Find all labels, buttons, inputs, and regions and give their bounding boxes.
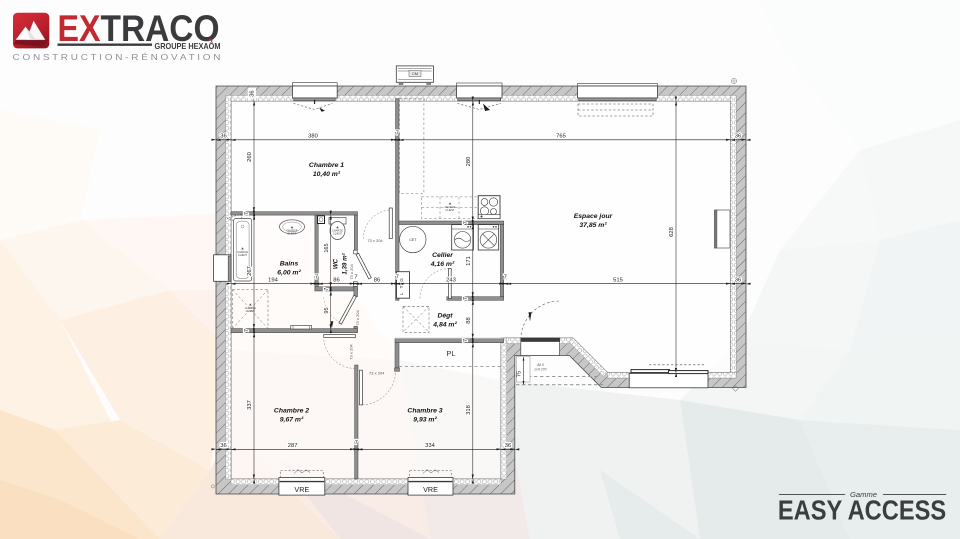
svg-text:7: 7 [244,329,250,332]
svg-text:VRE: VRE [423,485,438,494]
svg-text:VRE: VRE [294,485,309,494]
svg-text:36: 36 [505,443,511,449]
svg-text:9,67 m²: 9,67 m² [280,417,304,424]
svg-text:243: 243 [446,277,456,283]
svg-text:73 x 204: 73 x 204 [349,264,354,280]
svg-text:171: 171 [466,256,472,266]
svg-text:7: 7 [504,274,507,280]
svg-text:6,00 m²: 6,00 m² [277,270,301,277]
svg-text:7: 7 [355,440,358,446]
svg-text:95: 95 [324,307,330,313]
svg-text:37,85 m²: 37,85 m² [579,222,607,229]
svg-text:Chambre 2: Chambre 2 [274,408,309,415]
svg-text:Chambre 3: Chambre 3 [407,408,442,415]
svg-text:C O N S T R U C T I O N - R: C O N S T R U C T I O N - R É N O V A T … [13,53,221,62]
svg-text:75: 75 [517,371,523,377]
svg-text:WC: WC [333,258,340,269]
svg-text:287: 287 [288,443,298,449]
svg-text:73 x 204: 73 x 204 [369,371,385,376]
svg-text:73 x 204: 73 x 204 [348,344,353,360]
svg-text:86: 86 [374,277,380,283]
svg-text:CLIENT: CLIENT [445,208,455,212]
svg-text:194: 194 [268,277,278,283]
svg-text:7: 7 [244,212,250,215]
svg-text:515: 515 [613,277,623,283]
svg-text:7: 7 [354,274,357,280]
svg-text:Alt 0: Alt 0 [536,363,544,367]
svg-text:36: 36 [220,134,226,140]
svg-text:7: 7 [396,131,399,137]
svg-text:88: 88 [466,317,472,323]
svg-text:36: 36 [735,277,741,283]
svg-text:267: 267 [247,266,253,276]
svg-text:73 x 204: 73 x 204 [355,310,360,326]
svg-text:73 x 204: 73 x 204 [367,238,383,243]
svg-text:318: 318 [466,405,472,415]
svg-text:36: 36 [735,134,741,140]
svg-text:7: 7 [396,274,399,280]
svg-text:EX: EX [58,8,101,49]
svg-text:Cellier: Cellier [432,252,453,259]
svg-text:7: 7 [463,339,469,342]
svg-text:4,84 m²: 4,84 m² [432,322,457,329]
svg-text:7: 7 [324,288,330,291]
svg-text:Dégt: Dégt [437,313,453,320]
svg-text:280: 280 [466,157,472,167]
svg-text:L: L [399,292,404,295]
svg-text:CM: CM [412,71,418,76]
svg-text:165: 165 [324,243,330,252]
svg-text:CET: CET [409,238,417,242]
svg-text:334: 334 [425,443,435,449]
svg-text:CLIENT: CLIENT [287,232,297,236]
svg-text:628: 628 [669,227,675,237]
svg-text:PL: PL [446,349,455,358]
svg-text:380: 380 [308,134,318,140]
svg-text:LHt 270: LHt 270 [535,368,547,372]
svg-text:260: 260 [247,152,253,162]
svg-text:T: T [399,285,404,288]
svg-text:Chambre 1: Chambre 1 [309,162,344,169]
svg-text:Espace jour: Espace jour [574,213,613,220]
svg-text:10,40 m²: 10,40 m² [313,171,341,178]
svg-text:7: 7 [463,297,469,300]
svg-text:86: 86 [333,277,339,283]
svg-text:EASY ACCESS: EASY ACCESS [778,495,946,526]
svg-text:G: G [399,278,404,282]
svg-text:36: 36 [250,90,256,96]
svg-text:9,93 m²: 9,93 m² [413,417,437,424]
svg-text:7: 7 [315,274,318,280]
svg-text:337: 337 [247,400,253,410]
svg-text:GROUPE HEXAÔM: GROUPE HEXAÔM [155,40,221,51]
svg-text:765: 765 [556,134,566,140]
svg-text:4,16 m²: 4,16 m² [430,261,455,268]
svg-text:1,39 m²: 1,39 m² [342,252,349,274]
svg-text:Bains: Bains [280,261,299,268]
svg-text:7: 7 [463,221,469,224]
svg-text:36: 36 [220,443,226,449]
svg-text:CLIENT: CLIENT [238,253,248,257]
svg-text:CLIENT: CLIENT [333,232,343,236]
